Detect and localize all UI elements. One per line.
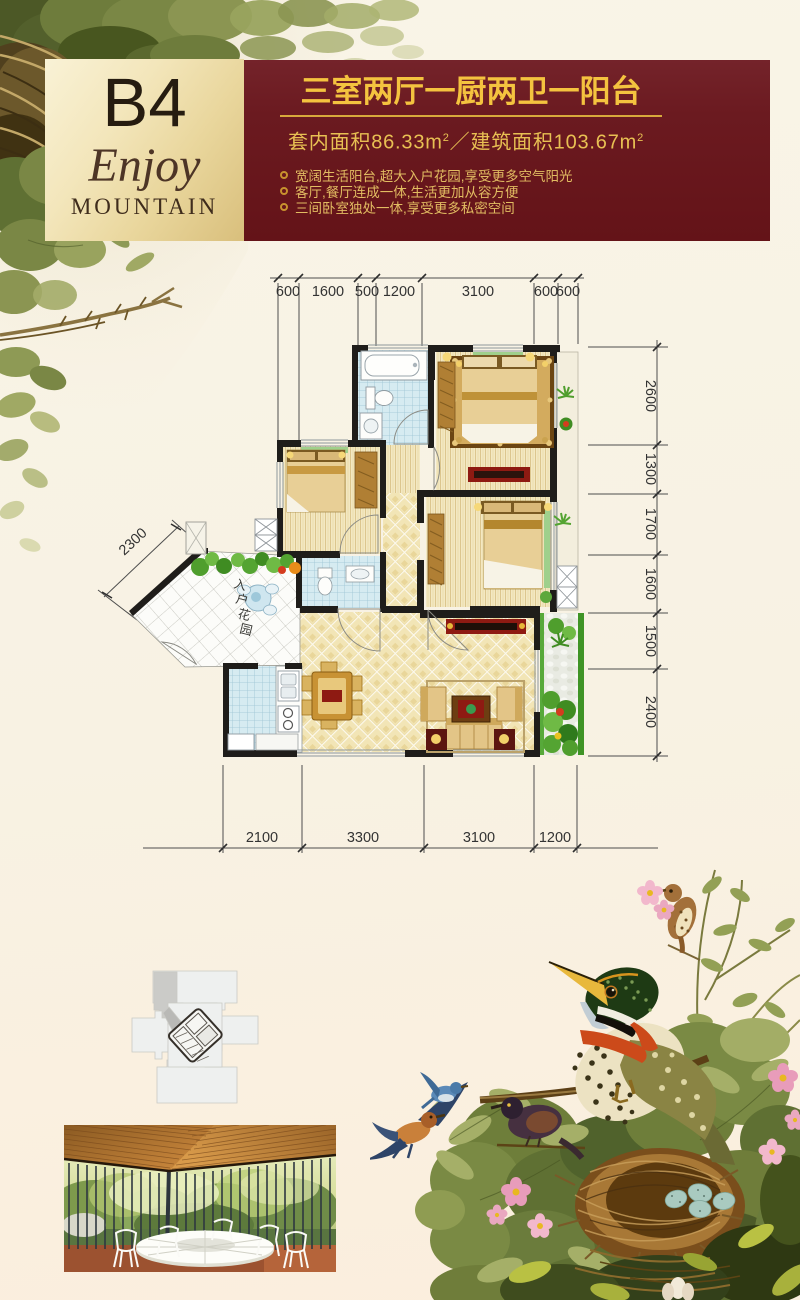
svg-text:600: 600 <box>534 284 558 300</box>
svg-text:600: 600 <box>276 284 300 300</box>
svg-text:2400: 2400 <box>642 696 658 728</box>
svg-text:500: 500 <box>355 284 379 300</box>
svg-text:3100: 3100 <box>462 284 494 300</box>
svg-text:2600: 2600 <box>642 380 658 412</box>
svg-text:2100: 2100 <box>246 830 278 846</box>
svg-text:1500: 1500 <box>642 625 658 657</box>
svg-text:2300: 2300 <box>116 525 151 559</box>
svg-text:600: 600 <box>556 284 580 300</box>
svg-text:1200: 1200 <box>383 284 415 300</box>
svg-text:1300: 1300 <box>642 453 658 485</box>
svg-text:1600: 1600 <box>642 568 658 600</box>
svg-text:1600: 1600 <box>312 284 344 300</box>
svg-text:1700: 1700 <box>642 508 658 540</box>
